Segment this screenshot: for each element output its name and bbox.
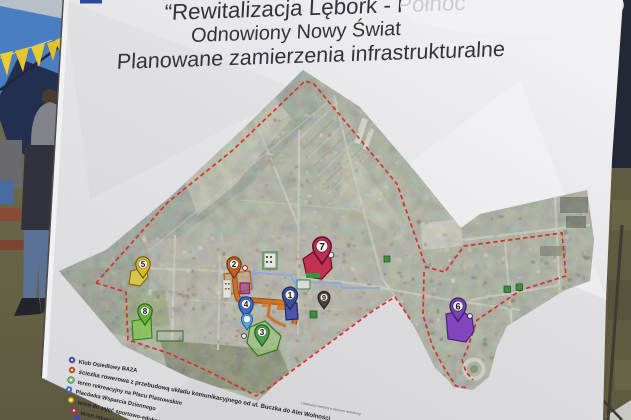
svg-text:5: 5 — [141, 260, 146, 269]
svg-text:2: 2 — [232, 260, 237, 269]
svg-text:4: 4 — [244, 300, 249, 309]
svg-text:9: 9 — [322, 293, 326, 302]
svg-text:7: 7 — [319, 242, 325, 253]
svg-text:6: 6 — [455, 301, 460, 311]
svg-text:3: 3 — [260, 328, 265, 337]
svg-text:1: 1 — [288, 290, 293, 300]
svg-text:8: 8 — [143, 307, 148, 316]
